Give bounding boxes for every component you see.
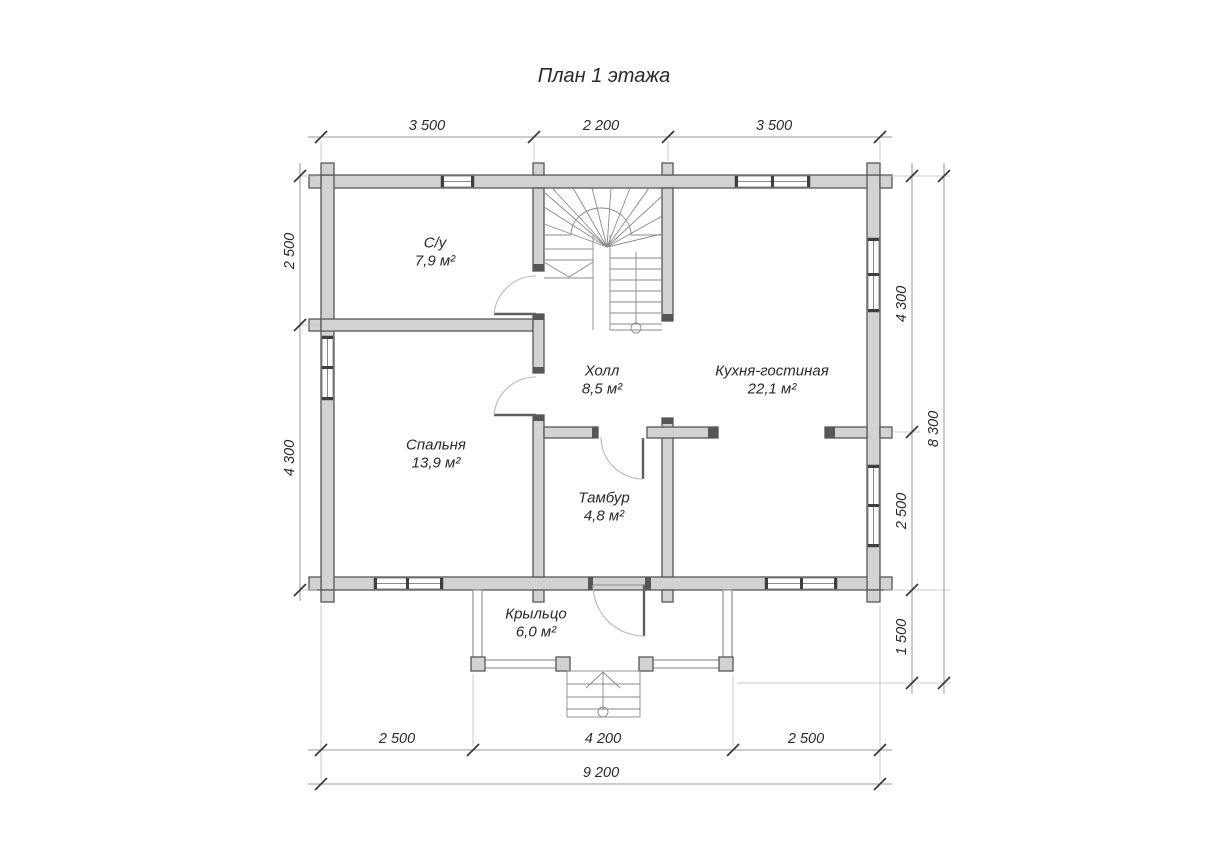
- dim-right-0: 4 300: [895, 286, 910, 322]
- room-label-porch-area: 6,0 м²: [516, 625, 556, 640]
- dim-top-0: 3 500: [409, 119, 445, 134]
- door-vestibule: [601, 437, 643, 479]
- room-label-vestibule-name: Тамбур: [578, 491, 629, 506]
- door-bathroom: [494, 276, 536, 314]
- window-right-upper: [868, 238, 879, 312]
- floor-plan-page: План 1 этажа С/у 7,9 м² Холл 8,5 м² Кухн…: [0, 0, 1214, 858]
- door-entrance: [593, 585, 645, 636]
- dim-bottom-total: 9 200: [583, 766, 619, 781]
- window-left: [322, 336, 333, 400]
- staircase: [544, 188, 662, 333]
- door-bedroom: [494, 377, 536, 415]
- window-right-lower: [868, 465, 879, 547]
- window-top-right: [735, 176, 810, 187]
- dim-right-1: 2 500: [895, 493, 910, 529]
- dim-right-2: 1 500: [895, 619, 910, 655]
- room-label-vestibule-area: 4,8 м²: [584, 509, 624, 524]
- room-label-bathroom-area: 7,9 м²: [415, 254, 455, 269]
- room-label-bedroom-area: 13,9 м²: [412, 456, 461, 471]
- room-label-kitchen-area: 22,1 м²: [748, 382, 797, 397]
- page-title: План 1 этажа: [538, 66, 670, 86]
- dimension-lines: [294, 131, 950, 790]
- room-label-bathroom-name: С/у: [424, 236, 447, 251]
- window-bottom-right: [765, 578, 837, 589]
- dim-bottom-0: 2 500: [379, 732, 415, 747]
- dim-top-2: 3 500: [756, 119, 792, 134]
- dim-bottom-1: 4 200: [585, 732, 621, 747]
- room-label-bedroom-name: Спальня: [406, 438, 466, 453]
- dim-bottom-2: 2 500: [788, 732, 824, 747]
- room-label-hall-name: Холл: [585, 364, 620, 379]
- dim-left-0: 2 500: [283, 233, 298, 269]
- room-label-hall-area: 8,5 м²: [582, 382, 622, 397]
- dim-top-1: 2 200: [583, 119, 619, 134]
- window-top-left: [441, 176, 474, 187]
- room-label-porch-name: Крыльцо: [505, 607, 567, 622]
- room-label-kitchen-name: Кухня-гостиная: [715, 364, 828, 379]
- window-bottom-left: [374, 578, 443, 589]
- porch-steps: [567, 671, 640, 717]
- dim-right-total: 8 300: [927, 411, 942, 447]
- dim-left-1: 4 300: [283, 440, 298, 476]
